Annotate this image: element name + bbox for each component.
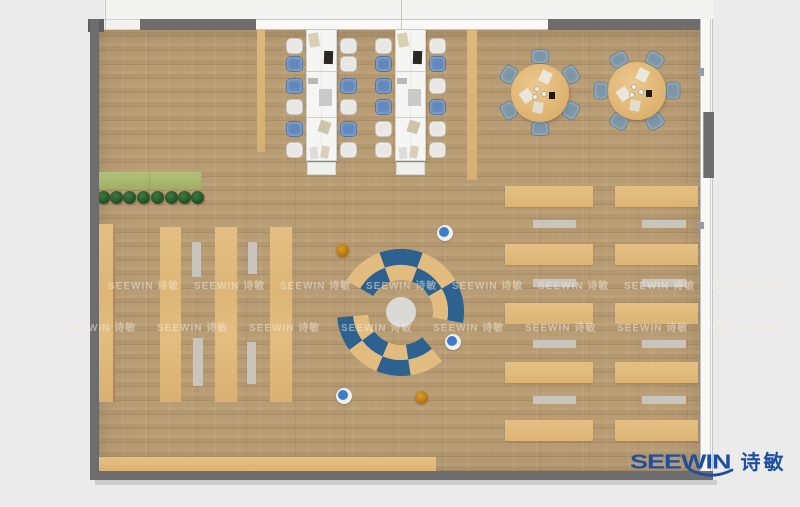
seewin-logo-chinese: 诗敏 [741, 453, 787, 473]
watermark-text: SEEWIN 诗敏 [341, 319, 412, 334]
watermark-text: SEEWIN 诗敏 [433, 319, 504, 334]
watermark-text: SEEWIN 诗敏 [194, 277, 265, 292]
seewin-logo: SEEWIN 诗敏 [630, 452, 787, 479]
watermark-text: SEEWIN 诗敏 [157, 319, 228, 334]
watermark-layer: SEEWIN 诗敏SEEWIN 诗敏SEEWIN 诗敏SEEWIN 诗敏SEEW… [0, 0, 800, 507]
watermark-text: SEEWIN 诗敏 [709, 319, 780, 334]
watermark-text: SEEWIN 诗敏 [280, 277, 351, 292]
floor-plan-canvas: SEEWIN 诗敏SEEWIN 诗敏SEEWIN 诗敏SEEWIN 诗敏SEEW… [0, 0, 800, 507]
watermark-text: SEEWIN 诗敏 [366, 277, 437, 292]
watermark-text: SEEWIN 诗敏 [525, 319, 596, 334]
watermark-text: SEEWIN 诗敏 [452, 277, 523, 292]
logo-swoosh-icon [687, 467, 735, 480]
watermark-text: SEEWIN 诗敏 [538, 277, 609, 292]
watermark-text: SEEWIN 诗敏 [249, 319, 320, 334]
watermark-text: SEEWIN 诗敏 [624, 277, 695, 292]
watermark-text: SEEWIN 诗敏 [710, 277, 781, 292]
watermark-text: SEEWIN 诗敏 [108, 277, 179, 292]
watermark-text: SEEWIN 诗敏 [617, 319, 688, 334]
watermark-text: SEEWIN 诗敏 [65, 319, 136, 334]
